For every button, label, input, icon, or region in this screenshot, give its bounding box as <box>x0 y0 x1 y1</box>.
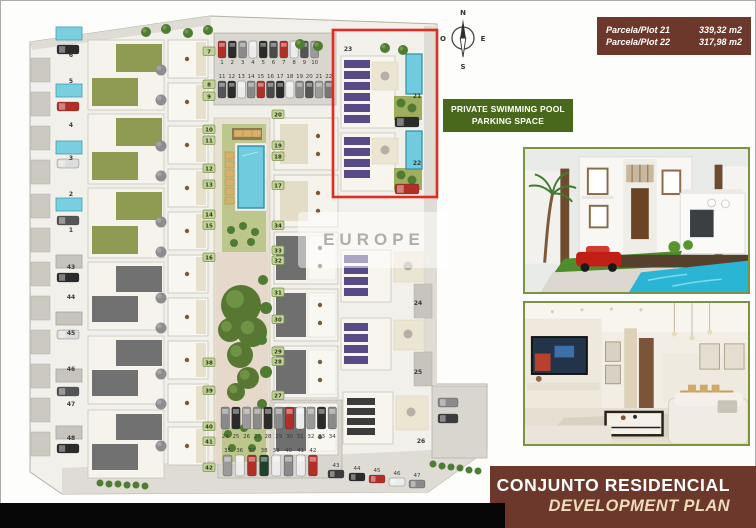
svg-text:29: 29 <box>274 350 282 356</box>
svg-text:45: 45 <box>67 330 75 337</box>
svg-text:31: 31 <box>274 291 282 297</box>
svg-text:46: 46 <box>67 366 75 373</box>
svg-text:13: 13 <box>238 74 245 80</box>
svg-text:41: 41 <box>205 440 213 446</box>
banner-title: CONJUNTO RESIDENCIAL <box>490 475 730 496</box>
svg-text:18: 18 <box>286 74 293 80</box>
compass-n: N <box>460 9 466 17</box>
svg-text:33: 33 <box>318 434 325 440</box>
plot-21-area: 339,32 m2 <box>699 25 742 35</box>
svg-text:30: 30 <box>274 318 282 324</box>
plot-21-label: Parcela/Plot 21 <box>606 25 670 35</box>
svg-text:21: 21 <box>413 93 421 100</box>
svg-text:39: 39 <box>273 448 280 454</box>
svg-text:28: 28 <box>274 360 282 366</box>
svg-text:8: 8 <box>207 83 211 89</box>
svg-text:22: 22 <box>413 160 421 167</box>
svg-text:37: 37 <box>248 448 255 454</box>
svg-text:3: 3 <box>69 155 73 162</box>
compass-needle-north <box>460 19 466 38</box>
compass-e: E <box>481 35 486 43</box>
svg-text:38: 38 <box>261 448 268 454</box>
svg-text:6: 6 <box>69 52 73 59</box>
plot-21-row: Parcela/Plot 21 339,32 m2 <box>606 25 742 35</box>
svg-text:1: 1 <box>220 60 224 66</box>
svg-text:45: 45 <box>374 468 381 474</box>
svg-text:12: 12 <box>205 167 213 173</box>
svg-text:19: 19 <box>274 144 282 150</box>
svg-text:24: 24 <box>414 300 422 307</box>
svg-text:34: 34 <box>274 224 282 230</box>
svg-text:29: 29 <box>275 434 282 440</box>
svg-text:6: 6 <box>272 60 276 66</box>
svg-text:30: 30 <box>286 434 293 440</box>
svg-text:25: 25 <box>232 434 239 440</box>
svg-text:10: 10 <box>205 128 213 134</box>
svg-text:15: 15 <box>205 224 213 230</box>
pool-parking-label: PRIVATE SWIMMING POOL PARKING SPACE <box>443 99 573 132</box>
svg-text:33: 33 <box>274 249 282 255</box>
svg-text:25: 25 <box>414 369 422 376</box>
bottom-black-bar <box>0 503 505 528</box>
svg-text:17: 17 <box>274 184 282 190</box>
banner-subtitle: DEVELOPMENT PLAN <box>490 497 730 516</box>
svg-text:5: 5 <box>261 60 265 66</box>
svg-text:4: 4 <box>69 122 73 129</box>
svg-text:18: 18 <box>274 155 282 161</box>
svg-text:7: 7 <box>282 60 286 66</box>
svg-text:36: 36 <box>236 448 243 454</box>
svg-text:4: 4 <box>251 60 255 66</box>
svg-text:27: 27 <box>274 394 282 400</box>
feature-line-1: PRIVATE SWIMMING POOL <box>451 104 565 115</box>
svg-text:14: 14 <box>205 213 213 219</box>
svg-text:21: 21 <box>316 74 323 80</box>
compass-w: O <box>440 35 446 43</box>
svg-text:46: 46 <box>394 471 401 477</box>
plot-22-label: Parcela/Plot 22 <box>606 37 670 47</box>
watermark-text: EUROPE <box>323 230 425 250</box>
svg-text:16: 16 <box>267 74 274 80</box>
svg-text:40: 40 <box>205 425 213 431</box>
watermark: EUROPE <box>298 212 450 268</box>
svg-text:35: 35 <box>224 448 231 454</box>
svg-text:32: 32 <box>274 259 282 265</box>
svg-text:11: 11 <box>205 139 213 145</box>
svg-text:42: 42 <box>309 448 316 454</box>
svg-text:16: 16 <box>205 256 213 262</box>
svg-text:5: 5 <box>69 78 73 85</box>
development-plan-page: 1234567891011121314151617181920212224252… <box>0 0 756 528</box>
plot-22-row: Parcela/Plot 22 317,98 m2 <box>606 37 742 47</box>
svg-text:7: 7 <box>207 50 211 56</box>
villa-photo-render <box>525 149 748 292</box>
svg-text:3: 3 <box>241 60 245 66</box>
svg-text:9: 9 <box>303 60 307 66</box>
svg-text:26: 26 <box>243 434 250 440</box>
svg-text:39: 39 <box>205 389 213 395</box>
svg-text:15: 15 <box>257 74 264 80</box>
svg-text:17: 17 <box>277 74 284 80</box>
svg-text:13: 13 <box>205 183 213 189</box>
svg-text:40: 40 <box>285 448 292 454</box>
svg-text:22: 22 <box>325 74 332 80</box>
svg-text:19: 19 <box>296 74 303 80</box>
svg-text:27: 27 <box>254 434 261 440</box>
svg-text:32: 32 <box>307 434 314 440</box>
svg-text:26: 26 <box>417 438 425 445</box>
title-banner: CONJUNTO RESIDENCIAL DEVELOPMENT PLAN <box>490 466 756 528</box>
svg-text:14: 14 <box>248 74 255 80</box>
svg-text:10: 10 <box>311 60 318 66</box>
svg-text:38: 38 <box>205 361 213 367</box>
svg-text:48: 48 <box>67 435 75 442</box>
svg-text:43: 43 <box>333 463 340 469</box>
plot-areas-legend: Parcela/Plot 21 339,32 m2 Parcela/Plot 2… <box>597 17 751 55</box>
svg-text:8: 8 <box>292 60 296 66</box>
svg-text:2: 2 <box>231 60 235 66</box>
compass-needle-south <box>460 38 466 57</box>
svg-text:23: 23 <box>344 46 352 53</box>
svg-text:41: 41 <box>297 448 304 454</box>
interior-living-photo <box>523 301 750 446</box>
svg-text:31: 31 <box>297 434 304 440</box>
svg-text:12: 12 <box>228 74 235 80</box>
svg-text:34: 34 <box>329 434 336 440</box>
feature-line-2: PARKING SPACE <box>472 116 544 127</box>
svg-text:47: 47 <box>67 401 75 408</box>
svg-text:44: 44 <box>67 294 75 301</box>
villa-exterior-photo <box>523 147 750 294</box>
svg-text:11: 11 <box>219 74 226 80</box>
svg-text:9: 9 <box>207 95 211 101</box>
svg-text:42: 42 <box>205 466 213 472</box>
svg-text:1: 1 <box>69 227 73 234</box>
svg-text:24: 24 <box>222 434 229 440</box>
svg-text:47: 47 <box>414 473 421 479</box>
plot-22-area: 317,98 m2 <box>699 37 742 47</box>
svg-text:43: 43 <box>67 264 75 271</box>
svg-text:20: 20 <box>306 74 313 80</box>
interior-photo-render <box>525 303 748 444</box>
svg-text:28: 28 <box>265 434 272 440</box>
compass-s: S <box>460 63 465 71</box>
svg-text:44: 44 <box>354 466 361 472</box>
svg-text:2: 2 <box>69 191 73 198</box>
compass-rose: N E S O <box>434 2 492 74</box>
svg-text:20: 20 <box>274 113 282 119</box>
